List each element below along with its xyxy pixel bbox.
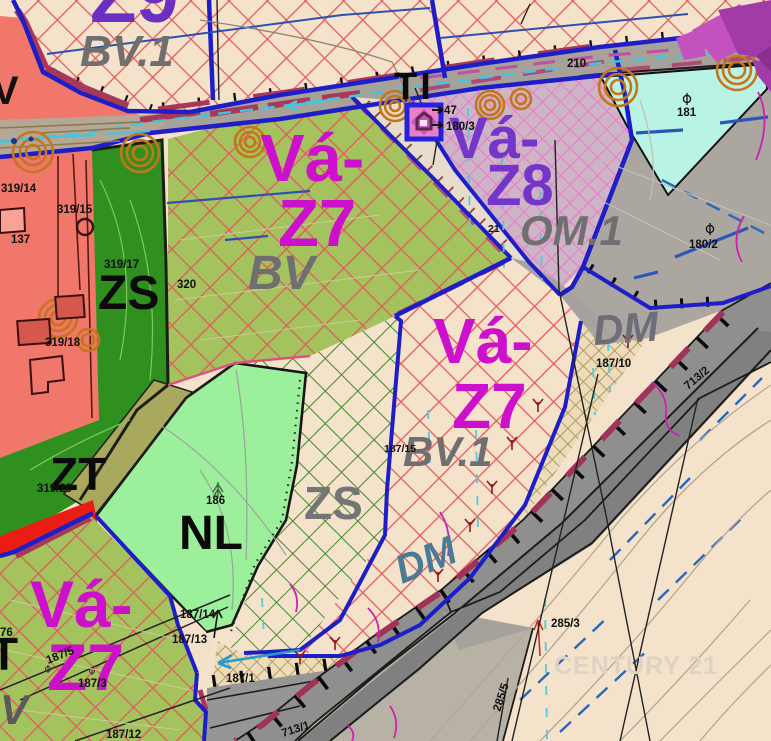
svg-text:BV: BV	[248, 247, 319, 300]
svg-text:47: 47	[444, 105, 457, 117]
svg-text:TI: TI	[394, 66, 434, 108]
svg-text:21: 21	[488, 223, 500, 235]
svg-text:319/15: 319/15	[57, 204, 93, 216]
svg-text:NL: NL	[179, 507, 243, 560]
svg-text:180/2: 180/2	[689, 239, 718, 251]
svg-text:187/14: 187/14	[180, 609, 216, 621]
svg-text:320: 320	[177, 279, 196, 291]
svg-text:285/3: 285/3	[551, 618, 580, 630]
svg-text:ZS: ZS	[304, 477, 363, 529]
svg-text:319/29: 319/29	[37, 483, 72, 495]
svg-text:ZS: ZS	[98, 267, 159, 320]
svg-text:V: V	[0, 686, 31, 733]
svg-text:319/17: 319/17	[104, 259, 139, 271]
svg-text:Z7: Z7	[47, 630, 124, 704]
svg-text:187/13: 187/13	[172, 634, 207, 646]
svg-text:V: V	[0, 69, 19, 113]
svg-text:OM.1: OM.1	[520, 207, 623, 254]
svg-text:210: 210	[567, 58, 586, 70]
svg-text:Vá-: Vá-	[433, 305, 533, 377]
svg-text:186: 186	[206, 495, 225, 507]
svg-text:76: 76	[0, 627, 13, 639]
svg-text:137: 137	[11, 234, 30, 246]
svg-text:319/14: 319/14	[1, 183, 37, 195]
svg-text:BV.1: BV.1	[403, 428, 493, 475]
svg-text:DM: DM	[591, 302, 660, 354]
svg-text:187/12: 187/12	[106, 729, 141, 741]
svg-text:187/1: 187/1	[226, 673, 255, 685]
svg-text:BV.1: BV.1	[80, 27, 174, 76]
svg-text:319/18: 319/18	[45, 337, 81, 349]
svg-text:187/15: 187/15	[384, 443, 416, 455]
svg-text:187/3: 187/3	[78, 678, 107, 690]
svg-text:187/10: 187/10	[596, 358, 631, 370]
svg-text:CENTURY 21: CENTURY 21	[554, 652, 718, 680]
svg-text:Vá-: Vá-	[260, 121, 364, 196]
svg-text:180/3: 180/3	[446, 121, 475, 133]
svg-text:181: 181	[677, 107, 697, 119]
